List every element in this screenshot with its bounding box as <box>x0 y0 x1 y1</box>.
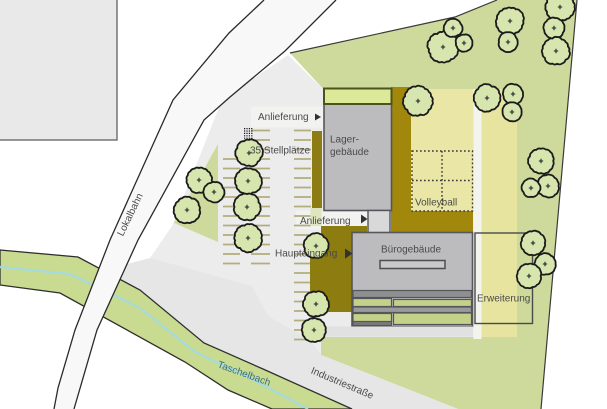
svg-text:Erweiterung: Erweiterung <box>477 294 530 305</box>
svg-text:Anlieferung: Anlieferung <box>300 216 351 227</box>
svg-text:Haupteingang: Haupteingang <box>275 249 337 260</box>
svg-text:Lager-: Lager- <box>330 135 359 146</box>
svg-text:Volleyball: Volleyball <box>415 198 457 209</box>
svg-text:Anlieferung: Anlieferung <box>258 112 309 123</box>
svg-text:gebäude: gebäude <box>330 147 369 158</box>
svg-text:Bürogebäude: Bürogebäude <box>381 245 441 256</box>
svg-text:35 Stellplätze: 35 Stellplätze <box>250 146 310 157</box>
